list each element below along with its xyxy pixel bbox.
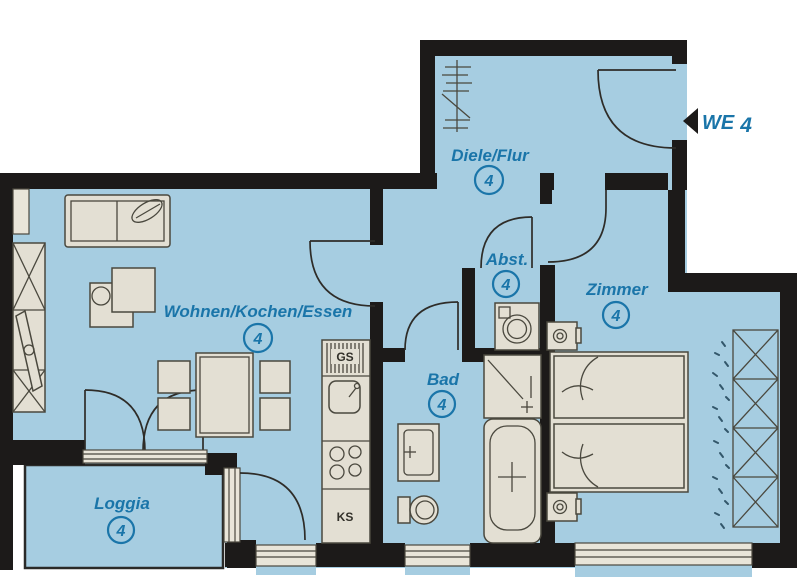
svg-text:4: 4 — [501, 277, 511, 294]
washing-machine — [495, 303, 539, 350]
window-living — [256, 545, 316, 566]
svg-text:Zimmer: Zimmer — [585, 280, 649, 299]
wardrobe-left — [13, 243, 45, 412]
sofa — [65, 195, 170, 247]
unit-marker: WE4 — [683, 108, 752, 137]
svg-text:4: 4 — [611, 308, 621, 325]
floorplan-drawing: GS KS — [0, 0, 800, 583]
svg-text:Bad: Bad — [427, 370, 460, 389]
unit-label: WE — [702, 112, 735, 134]
kitchen-counter: GS KS — [322, 340, 370, 543]
svg-text:WE4: WE4 — [702, 112, 752, 137]
svg-text:4: 4 — [437, 397, 447, 414]
svg-text:Diele/Flur: Diele/Flur — [451, 146, 530, 165]
svg-text:Abst.: Abst. — [485, 250, 529, 269]
floorplan-page: GS KS — [0, 0, 800, 583]
kitchen-sink — [329, 381, 360, 413]
window-sill-bad — [405, 566, 470, 575]
washbasin — [398, 424, 439, 481]
bathtub — [484, 419, 541, 543]
window-bad — [405, 545, 470, 566]
svg-text:4: 4 — [484, 173, 494, 190]
window-zimmer — [575, 543, 752, 565]
toilet — [398, 496, 438, 524]
nightstand-top — [547, 322, 581, 350]
fridge-label: KS — [337, 510, 354, 524]
window-pier-left — [13, 189, 29, 234]
shower — [484, 355, 541, 418]
window-sill-zimmer — [575, 565, 752, 577]
svg-text:4: 4 — [253, 331, 263, 348]
unit-number: 4 — [739, 114, 752, 137]
double-bed — [550, 352, 688, 492]
dishwasher-label: GS — [336, 350, 353, 364]
svg-text:4: 4 — [116, 523, 126, 540]
window-sill-living — [256, 566, 316, 575]
svg-text:Loggia: Loggia — [94, 494, 150, 513]
nightstand-bottom — [547, 493, 581, 521]
svg-text:Wohnen/Kochen/Essen: Wohnen/Kochen/Essen — [164, 302, 353, 321]
